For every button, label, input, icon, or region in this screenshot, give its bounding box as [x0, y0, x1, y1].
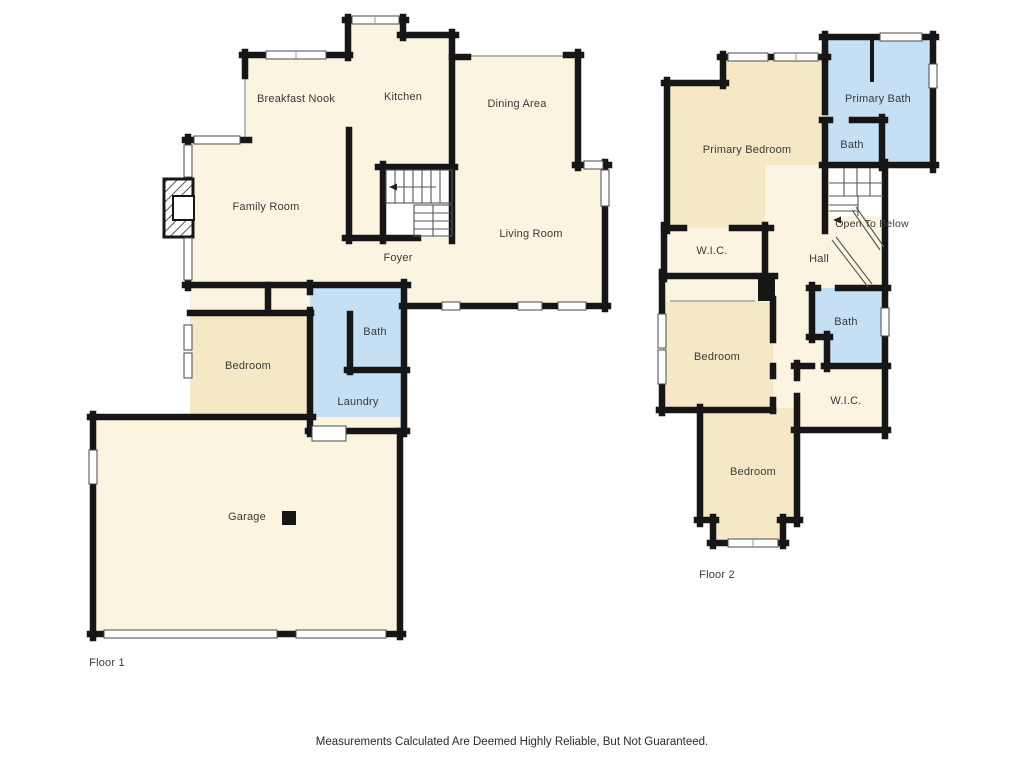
floor1-garage-fill: [93, 417, 400, 634]
floor1-closet-fill: [190, 285, 310, 313]
floor2-plan: [658, 33, 937, 547]
bedroom-mid-fill: [662, 302, 773, 410]
floor1-stairs-fill: [386, 167, 452, 237]
garage-door-right: [296, 630, 386, 638]
floor1-plan: [89, 16, 609, 638]
garage-post: [282, 511, 296, 525]
floor2-stairs-fill: [829, 168, 883, 216]
floor1-bath-laundry-fill: [310, 283, 404, 432]
wic-lower-fill: [794, 366, 885, 430]
garage-door-left: [104, 630, 277, 638]
floor1-bedroom-fill: [190, 313, 310, 420]
wic-upper-fill: [664, 228, 765, 276]
fireplace: [164, 179, 194, 237]
floor1-main-room-fill: [188, 20, 605, 306]
laundry-door-landing: [312, 426, 346, 441]
floor-plan-canvas: [0, 0, 1024, 768]
floor-plan-page: { "colors": { "room_fill": "#FAF4E0", "b…: [0, 0, 1024, 768]
bedroom-lower-fill: [700, 408, 797, 520]
